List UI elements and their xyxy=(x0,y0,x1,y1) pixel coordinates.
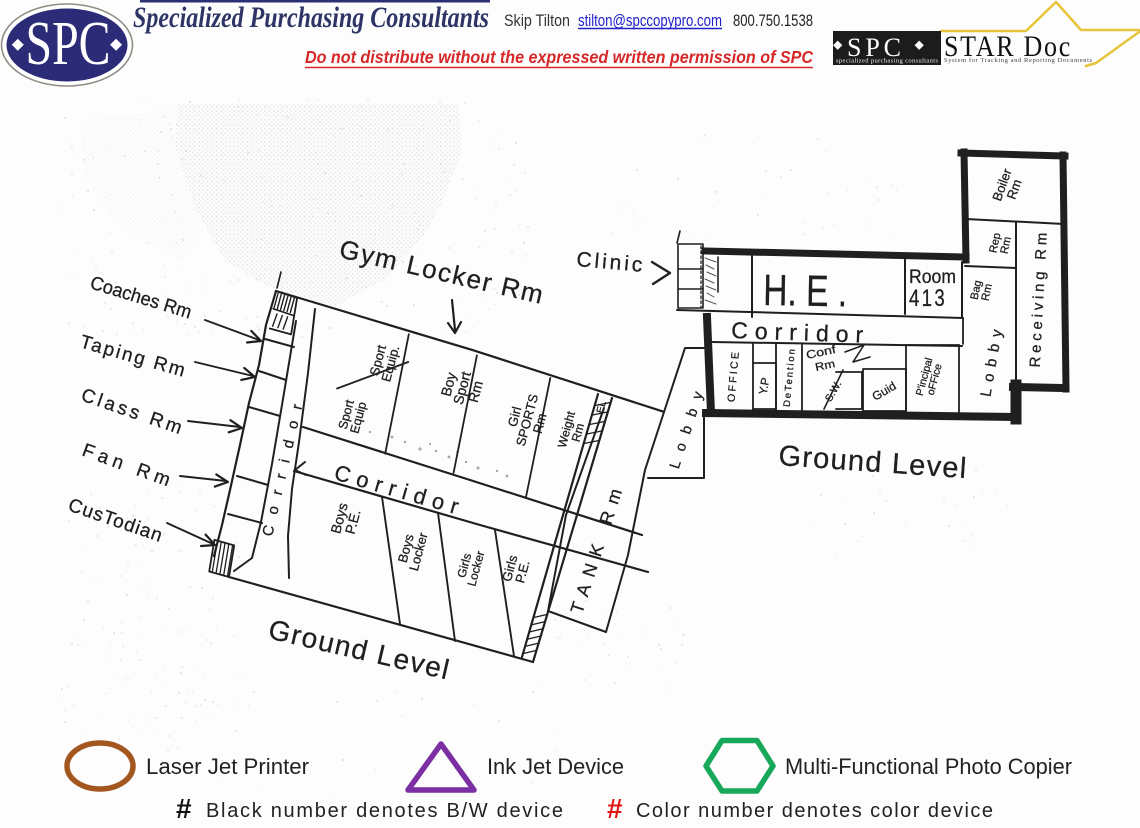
svg-text:Laser Jet Printer: Laser Jet Printer xyxy=(146,754,309,779)
svg-text:Do not distribute without the: Do not distribute without the expressed … xyxy=(305,47,813,67)
svg-text:H. E .: H. E . xyxy=(763,266,848,316)
svg-text:#: # xyxy=(176,793,192,824)
svg-text:Black number denotes B/W devic: Black number denotes B/W device xyxy=(206,800,563,822)
svg-text:stilton@spccopypro.com: stilton@spccopypro.com xyxy=(578,11,722,30)
svg-text:Ink Jet Device: Ink Jet Device xyxy=(487,754,624,779)
svg-text:Specialized Purchasing Consult: Specialized Purchasing Consultants xyxy=(133,1,489,34)
svg-text:413: 413 xyxy=(909,285,947,312)
svg-text:SPC: SPC xyxy=(26,10,111,78)
svg-text:specialized purchasing consult: specialized purchasing consultants xyxy=(836,58,938,65)
svg-text:800.750.1538: 800.750.1538 xyxy=(733,11,813,30)
svg-text:Multi-Functional Photo Copier: Multi-Functional Photo Copier xyxy=(785,754,1072,779)
svg-text:Skip Tilton: Skip Tilton xyxy=(504,11,570,30)
svg-text:System for Tracking and Report: System for Tracking and Reporting Docume… xyxy=(944,57,1092,64)
svg-text:#: # xyxy=(607,793,623,824)
